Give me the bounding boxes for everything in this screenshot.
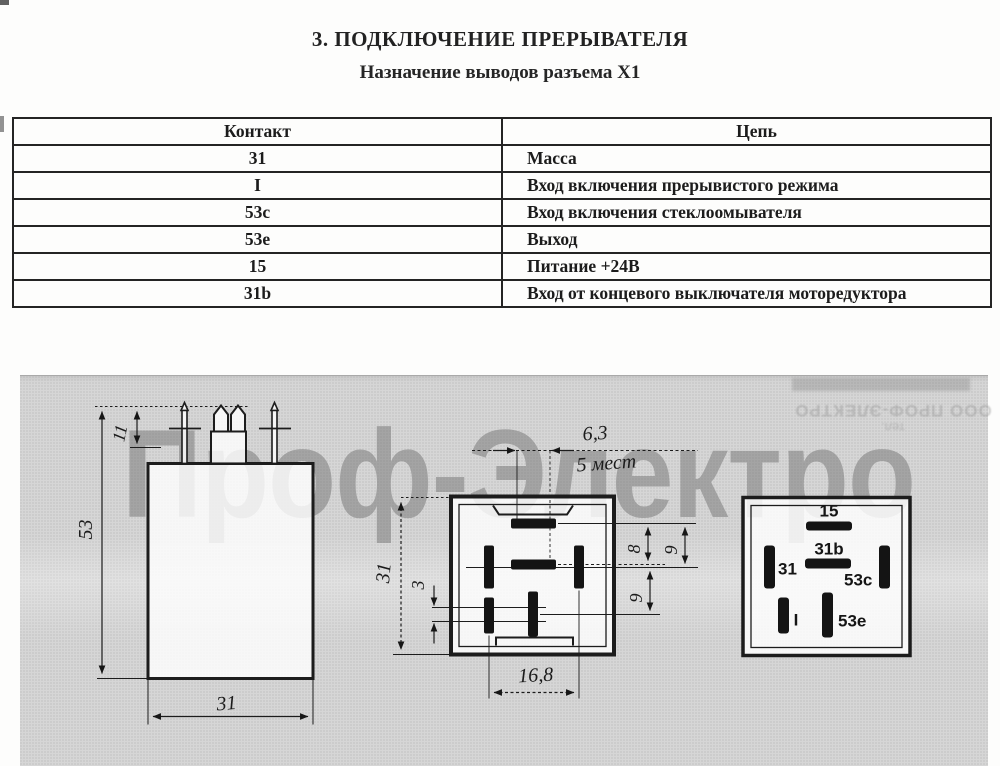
dim-31-width: 31 — [215, 692, 238, 716]
col-header-circuit: Цепь — [502, 118, 991, 145]
pin-53c — [879, 546, 890, 589]
side-view-drawing — [95, 403, 313, 725]
circuit-cell: Питание +24В — [502, 253, 991, 280]
scanned-drawing-panel: Проф-Электро тел. ООО ПРОФ-ЭЛЕКТРО — [20, 375, 988, 766]
pin-31b — [805, 559, 851, 569]
table-header-row: Контакт Цепь — [13, 118, 991, 145]
pin-I — [778, 598, 789, 634]
dim-9-top: 9 — [661, 546, 681, 555]
contact-cell: 15 — [13, 253, 502, 280]
pin-label-31: 31 — [778, 560, 797, 579]
slot-53c — [574, 546, 584, 589]
pin-assignment-table: Контакт Цепь 31 Масса I Вход включения п… — [12, 117, 992, 308]
table-row: 53c Вход включения стеклоомывателя — [13, 199, 991, 226]
circuit-cell: Масса — [502, 145, 991, 172]
scan-speck — [0, 116, 4, 132]
pin-label-53c: 53c — [844, 571, 872, 590]
pin-label-15: 15 — [820, 502, 839, 521]
pin-label-I: I — [794, 611, 799, 630]
dim-3: 3 — [408, 581, 428, 591]
dim-11: 11 — [108, 423, 131, 443]
contact-cell: I — [13, 172, 502, 199]
col-header-contact: Контакт — [13, 118, 502, 145]
contact-cell: 31 — [13, 145, 502, 172]
pin-label-31b: 31b — [814, 540, 843, 559]
pinout-drawing — [743, 498, 910, 656]
table-row: 15 Питание +24В — [13, 253, 991, 280]
dim-5-places: 5 мест — [576, 450, 637, 476]
circuit-cell: Вход от концевого выключателя моторедукт… — [502, 280, 991, 307]
contact-cell: 53e — [13, 226, 502, 253]
relay-body — [148, 464, 313, 679]
page-title: 3. ПОДКЛЮЧЕНИЕ ПРЕРЫВАТЕЛЯ — [0, 27, 1000, 52]
pin-label-53e: 53e — [838, 612, 866, 631]
slot-I — [484, 598, 494, 634]
contact-cell: 53c — [13, 199, 502, 226]
dim-16-8: 16,8 — [518, 664, 554, 688]
circuit-cell: Вход включения прерывистого режима — [502, 172, 991, 199]
relay-drawing: 53 11 31 — [20, 376, 988, 766]
scan-speck — [0, 0, 9, 5]
slot-31 — [484, 546, 494, 589]
dim-31-height: 31 — [372, 562, 396, 585]
dim-8: 8 — [624, 545, 644, 554]
table-row: 53e Выход — [13, 226, 991, 253]
pin-53e — [822, 593, 833, 638]
table-row: I Вход включения прерывистого режима — [13, 172, 991, 199]
dim-6-3: 6,3 — [582, 422, 608, 446]
page-subtitle: Назначение выводов разъема X1 — [0, 62, 1000, 84]
pin-31 — [764, 546, 775, 589]
bottom-view-drawing — [393, 451, 698, 699]
table-row: 31b Вход от концевого выключателя моторе… — [13, 280, 991, 307]
pin-15 — [806, 522, 852, 531]
dim-53: 53 — [75, 520, 97, 540]
table-row: 31 Масса — [13, 145, 991, 172]
contact-cell: 31b — [13, 280, 502, 307]
circuit-cell: Вход включения стеклоомывателя — [502, 199, 991, 226]
circuit-cell: Выход — [502, 226, 991, 253]
dim-9-bottom: 9 — [626, 594, 646, 603]
slot-31b — [511, 560, 556, 570]
slot-53e — [528, 592, 538, 637]
slot-15 — [511, 519, 556, 529]
document-page: 3. ПОДКЛЮЧЕНИЕ ПРЕРЫВАТЕЛЯ Назначение вы… — [0, 0, 1000, 766]
